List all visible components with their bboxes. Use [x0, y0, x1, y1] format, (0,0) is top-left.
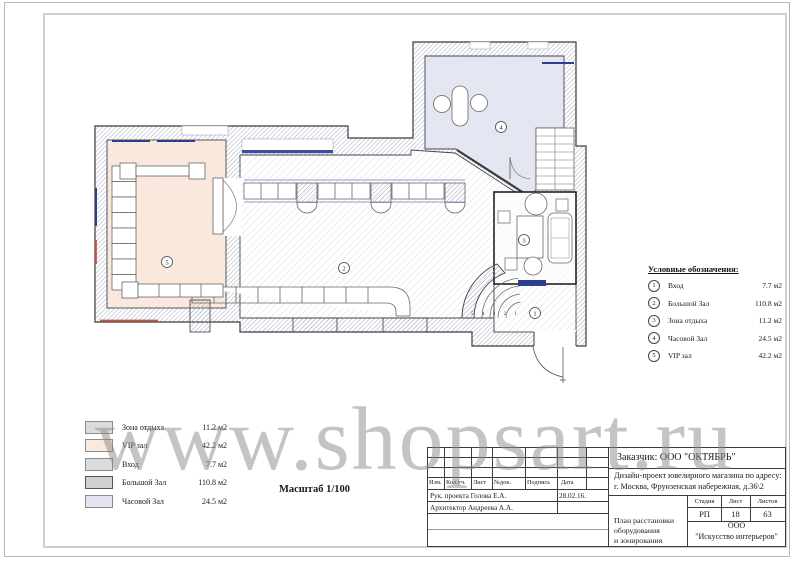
legend-num-5: 5	[648, 350, 660, 362]
svg-text:1: 1	[533, 310, 536, 317]
legend-item: Большой Зал 110.8 м2	[85, 477, 227, 489]
top-left-niche	[182, 126, 228, 135]
sheets-total: 63	[750, 509, 785, 519]
zone-marker-1: 1	[530, 308, 541, 319]
legend-item: 4 Часовой Зал 24.5 м2	[648, 332, 782, 344]
side-table-3	[556, 199, 568, 211]
rev-header-data: Дата	[561, 479, 574, 486]
entry-door	[533, 347, 566, 383]
legend-item: 2 Большой Зал 110.8 м2	[648, 297, 782, 309]
company-name: ООО "Искусство интерьеров"	[688, 521, 785, 543]
rest-zone-room	[494, 192, 576, 286]
title-block: Изм. Кол.уч. Лист №док. Подпись Дата Рук…	[427, 447, 786, 547]
stage-value: РП	[688, 509, 721, 519]
title-block-revision-table: Изм. Кол.уч. Лист №док. Подпись Дата Рук…	[428, 448, 609, 546]
rev-header-podpis: Подпись	[527, 479, 550, 486]
sheet-header: Лист	[721, 498, 750, 505]
zone-marker-3: 3	[519, 235, 530, 246]
roof-notch-1	[470, 42, 490, 49]
stage-header: Стадия	[688, 498, 721, 505]
legend-left: Зона отдыха 11.2 м2 VIP зал 42.2 м2 Вход…	[85, 421, 227, 514]
svg-text:5: 5	[165, 259, 168, 266]
project-lead-row: Рук. проекта Голова Е.А.	[430, 492, 506, 500]
drawing-sheet: 5 4 3 2 1 1 2	[0, 0, 794, 561]
scale-label: Масштаб 1/100	[252, 484, 377, 495]
side-table-1	[498, 211, 510, 223]
round-table	[525, 193, 547, 215]
legend-item: Вход 7.7 м2	[85, 458, 227, 470]
zone-swatch	[85, 476, 113, 489]
legend-item: Зона отдыха 11.2 м2	[85, 421, 227, 433]
drawing-title: План расстановки оборудования и зонирова…	[609, 496, 688, 546]
rev-header-ndok: №док.	[494, 479, 511, 486]
zone-swatch	[85, 458, 113, 471]
svg-text:2: 2	[342, 265, 345, 272]
zone-marker-2: 2	[339, 263, 350, 274]
legend-num-2: 2	[648, 297, 660, 309]
rev-header-list: Лист	[473, 479, 486, 486]
step-numbers: 5 4 3 2 1	[471, 312, 518, 317]
legend-num-1: 1	[648, 280, 660, 292]
legend-item: 5 VIP зал 42.2 м2	[648, 350, 782, 362]
project-address: Дизайн-проект ювелирного магазина по адр…	[609, 469, 785, 496]
legend-title: Условные обозначения:	[648, 264, 782, 274]
zone-swatch	[85, 439, 113, 452]
project-lead-date: 28.02.16.	[559, 492, 586, 500]
title-block-info: Заказчик: ООО "ОКТЯБРЬ" Дизайн-проект юв…	[609, 448, 785, 546]
legend-item: VIP зал 42.2 м2	[85, 440, 227, 452]
vip-arch-doorway	[213, 178, 241, 236]
stage-table: Стадия Лист Листов РП 18 63 ООО "Искусст…	[688, 496, 785, 546]
zone-swatch	[85, 421, 113, 434]
rev-header-izm: Изм.	[429, 479, 442, 486]
legend-right: Условные обозначения: 1 Вход 7.7 м2 2 Бо…	[648, 264, 782, 362]
entry-mat	[518, 280, 546, 286]
chair	[524, 257, 542, 275]
sheets-header: Листов	[750, 498, 785, 505]
roof-notch-2	[528, 42, 548, 49]
side-table-2	[505, 258, 517, 270]
legend-item: Часовой Зал 24.5 м2	[85, 495, 227, 507]
zone-swatch	[85, 495, 113, 508]
architect-row: Архитектор Андреева А.А.	[430, 504, 513, 512]
window-bay	[242, 139, 333, 153]
legend-num-3: 3	[648, 315, 660, 327]
zone-marker-4: 4	[496, 122, 507, 133]
customer-line: Заказчик: ООО "ОКТЯБРЬ"	[609, 448, 785, 469]
legend-num-4: 4	[648, 332, 660, 344]
floor-plan: 5 4 3 2 1 1 2	[85, 25, 595, 385]
zone-marker-5: 5	[162, 257, 173, 268]
svg-text:3: 3	[522, 237, 525, 244]
legend-item: 1 Вход 7.7 м2	[648, 280, 782, 292]
sheet-number: 18	[721, 509, 750, 519]
rev-header-koluch: Кол.уч.	[446, 479, 466, 486]
legend-item: 3 Зона отдыха 11.2 м2	[648, 315, 782, 327]
